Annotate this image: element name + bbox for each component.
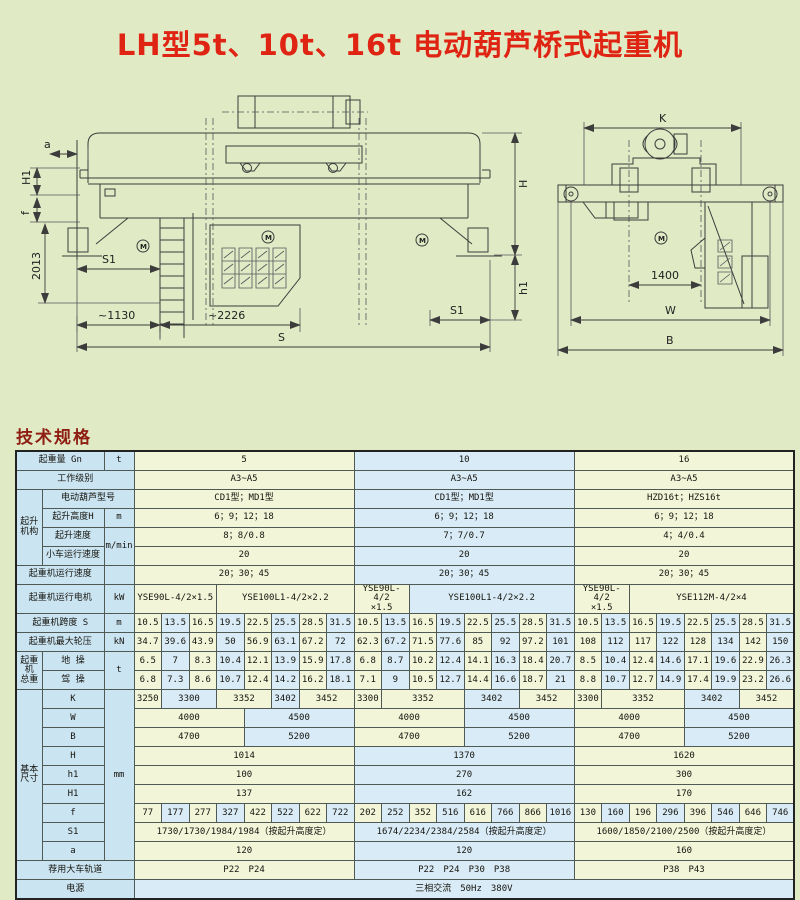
spec-row: 起升高度Hm6；9；12；186；9；12；186；9；12；18 bbox=[16, 509, 794, 528]
spec-table-wrap: 起重量 Gnt51016工作级别A3~A5A3~A5A3~A5起升 机构电动葫芦… bbox=[15, 450, 793, 900]
spec-label-cell: B bbox=[42, 728, 104, 747]
spec-value-cell: 746 bbox=[767, 804, 795, 823]
trolley-frame bbox=[226, 146, 362, 163]
dim-label-B: B bbox=[666, 334, 674, 347]
dim-label-2226: ~2226 bbox=[208, 309, 245, 322]
spec-value-cell: 16.5 bbox=[189, 614, 217, 633]
crane-end-view-drawing: K bbox=[548, 88, 798, 380]
crane-elevation-svg: M M M a H1 f bbox=[10, 88, 550, 383]
dim-label-S1-right: S1 bbox=[450, 304, 464, 317]
spec-value-cell: 19.5 bbox=[437, 614, 465, 633]
spec-value-cell: 4500 bbox=[464, 709, 574, 728]
spec-value-cell: 4700 bbox=[134, 728, 244, 747]
spec-value-cell: 62.3 bbox=[354, 633, 382, 652]
left-crane-wheel bbox=[68, 228, 88, 252]
spec-value-cell: 22.5 bbox=[244, 614, 272, 633]
right-end-brace bbox=[440, 218, 472, 244]
spec-label-cell: kN bbox=[104, 633, 134, 652]
spec-label-cell: 起升速度 bbox=[42, 528, 104, 547]
motor-symbol-2: M bbox=[262, 231, 274, 243]
spec-value-cell: 3452 bbox=[299, 690, 354, 709]
spec-value-cell: A3~A5 bbox=[574, 471, 794, 490]
spec-label-cell: 起重机跨度 S bbox=[16, 614, 104, 633]
spec-value-cell: 160 bbox=[602, 804, 630, 823]
spec-value-cell: 3250 bbox=[134, 690, 162, 709]
spec-value-cell: 5200 bbox=[244, 728, 354, 747]
spec-value-cell: 516 bbox=[437, 804, 465, 823]
spec-value-cell: 12.7 bbox=[437, 671, 465, 690]
spec-value-cell: 20；30；45 bbox=[134, 566, 354, 585]
spec-value-cell: 1014 bbox=[134, 747, 354, 766]
spec-value-cell: 352 bbox=[409, 804, 437, 823]
hoist-side-panel bbox=[742, 256, 768, 308]
spec-value-cell: 14.2 bbox=[272, 671, 300, 690]
cab-windows bbox=[222, 248, 286, 288]
spec-value-cell: 25.5 bbox=[492, 614, 520, 633]
spec-value-cell: 196 bbox=[629, 804, 657, 823]
dim-label-H: H bbox=[517, 180, 530, 188]
dim-label-1400: 1400 bbox=[651, 269, 679, 282]
spec-value-cell: 766 bbox=[492, 804, 520, 823]
spec-row: 起重机运行电机kWYSE90L-4/2×1.5YSE100L1-4/2×2.2Y… bbox=[16, 585, 794, 614]
spec-label-cell: m bbox=[104, 614, 134, 633]
spec-value-cell: 17.4 bbox=[684, 671, 712, 690]
spec-label-cell: 起重机运行速度 bbox=[16, 566, 104, 585]
spec-value-cell: 8.6 bbox=[189, 671, 217, 690]
spec-value-cell: 6；9；12；18 bbox=[354, 509, 574, 528]
spec-value-cell: 19.5 bbox=[657, 614, 685, 633]
spec-value-cell: 19.5 bbox=[217, 614, 245, 633]
spec-value-cell: 117 bbox=[629, 633, 657, 652]
runway-wheel-right-hub bbox=[768, 192, 772, 196]
spec-label-cell: 工作级别 bbox=[16, 471, 134, 490]
motor-symbol-end-view: M bbox=[655, 232, 667, 244]
spec-value-cell: 19.9 bbox=[712, 671, 740, 690]
spec-value-cell: 17.1 bbox=[684, 652, 712, 671]
spec-value-cell: 5200 bbox=[464, 728, 574, 747]
spec-value-cell: 7.3 bbox=[162, 671, 190, 690]
motor-letter: M bbox=[140, 243, 147, 251]
spec-heading: 技术规格 bbox=[16, 423, 92, 448]
spec-value-cell: 3352 bbox=[382, 690, 465, 709]
spec-value-cell: 72 bbox=[327, 633, 355, 652]
spec-value-cell: 4；4/0.4 bbox=[574, 528, 794, 547]
spec-value-cell: 3300 bbox=[162, 690, 217, 709]
left-support-bracket bbox=[583, 202, 638, 218]
right-end-stop bbox=[482, 170, 490, 178]
spec-label-cell bbox=[104, 566, 134, 585]
spec-value-cell: 277 bbox=[189, 804, 217, 823]
spec-label-cell: t bbox=[104, 652, 134, 690]
spec-value-cell: 12.7 bbox=[629, 671, 657, 690]
spec-value-cell: 10.7 bbox=[602, 671, 630, 690]
spec-value-cell: 19.6 bbox=[712, 652, 740, 671]
spec-value-cell: YSE100L1-4/2×2.2 bbox=[409, 585, 574, 614]
spec-value-cell: 3352 bbox=[217, 690, 272, 709]
spec-label-cell: t bbox=[104, 451, 134, 471]
spec-value-cell: 16.2 bbox=[299, 671, 327, 690]
spec-value-cell: 50 bbox=[217, 633, 245, 652]
spec-value-cell: 7 bbox=[162, 652, 190, 671]
spec-value-cell: 722 bbox=[327, 804, 355, 823]
spec-value-cell: 18.4 bbox=[519, 652, 547, 671]
spec-label-cell: m/min bbox=[104, 528, 134, 566]
spec-label-cell: 起重机最大轮压 bbox=[16, 633, 104, 652]
spec-value-cell: 396 bbox=[684, 804, 712, 823]
spec-value-cell: 3402 bbox=[272, 690, 300, 709]
cab-diagonal-brace bbox=[708, 206, 744, 304]
spec-value-cell: 10 bbox=[354, 451, 574, 471]
spec-value-cell: YSE90L-4/2×1.5 bbox=[134, 585, 217, 614]
spec-value-cell: 20.7 bbox=[547, 652, 575, 671]
dim-label-W: W bbox=[665, 304, 676, 317]
motor-letter: M bbox=[419, 237, 426, 245]
spec-value-cell: 12.4 bbox=[244, 671, 272, 690]
spec-value-cell: 300 bbox=[574, 766, 794, 785]
spec-value-cell: 13.5 bbox=[602, 614, 630, 633]
spec-value-cell: 28.5 bbox=[739, 614, 767, 633]
spec-value-cell: 4700 bbox=[574, 728, 684, 747]
spec-value-cell: 12.4 bbox=[437, 652, 465, 671]
spec-value-cell: 4000 bbox=[134, 709, 244, 728]
spec-value-cell: 22.9 bbox=[739, 652, 767, 671]
spec-value-cell: 67.2 bbox=[299, 633, 327, 652]
spec-value-cell: 26.3 bbox=[767, 652, 795, 671]
page-title: LH型5t、10t、16t 电动葫芦桥式起重机 bbox=[0, 22, 800, 64]
spec-value-cell: 13.5 bbox=[382, 614, 410, 633]
spec-value-cell: 170 bbox=[574, 785, 794, 804]
spec-value-cell: 10.5 bbox=[409, 671, 437, 690]
spec-value-cell: 4700 bbox=[354, 728, 464, 747]
spec-value-cell: HZD16t；HZS16t bbox=[574, 490, 794, 509]
dim-label-K: K bbox=[659, 112, 667, 125]
spec-value-cell: 4000 bbox=[354, 709, 464, 728]
trolley-end-frame bbox=[612, 158, 716, 185]
spec-value-cell: 20 bbox=[354, 547, 574, 566]
spec-value-cell: 7；7/0.7 bbox=[354, 528, 574, 547]
dim-label-1130: ~1130 bbox=[98, 309, 135, 322]
spec-value-cell: 85 bbox=[464, 633, 492, 652]
spec-label-cell: h1 bbox=[42, 766, 104, 785]
spec-row: 荐用大车轨道P22 P24P22 P24 P30 P38P38 P43 bbox=[16, 861, 794, 880]
spec-value-cell: 6；9；12；18 bbox=[574, 509, 794, 528]
spec-value-cell: 1730/1730/1984/1984（按起升高度定） bbox=[134, 823, 354, 842]
spec-label-cell: 小车运行速度 bbox=[42, 547, 104, 566]
spec-value-cell: 5 bbox=[134, 451, 354, 471]
spec-value-cell: 327 bbox=[217, 804, 245, 823]
spec-label-cell: 驾 操 bbox=[42, 671, 104, 690]
spec-value-cell: 112 bbox=[602, 633, 630, 652]
spec-value-cell: 18.1 bbox=[327, 671, 355, 690]
dim-label-S: S bbox=[278, 331, 285, 344]
spec-value-cell: P22 P24 P30 P38 bbox=[354, 861, 574, 880]
spec-value-cell: 7.1 bbox=[354, 671, 382, 690]
spec-label-cell: 电源 bbox=[16, 880, 134, 900]
spec-value-cell: 31.5 bbox=[767, 614, 795, 633]
spec-label-cell: 起重机 总重 bbox=[16, 652, 42, 690]
hoist-motor-body bbox=[645, 129, 675, 159]
spec-table: 起重量 Gnt51016工作级别A3~A5A3~A5A3~A5起升 机构电动葫芦… bbox=[15, 450, 795, 900]
spec-value-cell: 43.9 bbox=[189, 633, 217, 652]
hoist-reducer bbox=[674, 134, 687, 154]
spec-value-cell: 56.9 bbox=[244, 633, 272, 652]
spec-value-cell: 97.2 bbox=[519, 633, 547, 652]
trolley-hanger-left bbox=[614, 202, 648, 220]
spec-value-cell: 8.3 bbox=[189, 652, 217, 671]
spec-value-cell: 13.9 bbox=[272, 652, 300, 671]
spec-value-cell: 3352 bbox=[602, 690, 685, 709]
spec-value-cell: 177 bbox=[162, 804, 190, 823]
spec-value-cell: A3~A5 bbox=[134, 471, 354, 490]
spec-value-cell: 100 bbox=[134, 766, 354, 785]
spec-label-cell: 起重量 Gn bbox=[16, 451, 104, 471]
spec-value-cell: 9 bbox=[382, 671, 410, 690]
spec-value-cell: 3452 bbox=[739, 690, 794, 709]
spec-label-cell: W bbox=[42, 709, 104, 728]
spec-value-cell: 63.1 bbox=[272, 633, 300, 652]
spec-value-cell: 25.5 bbox=[712, 614, 740, 633]
spec-value-cell: 31.5 bbox=[327, 614, 355, 633]
spec-value-cell: CD1型；MD1型 bbox=[354, 490, 574, 509]
spec-value-cell: 10.4 bbox=[602, 652, 630, 671]
spec-value-cell: 92 bbox=[492, 633, 520, 652]
spec-value-cell: 622 bbox=[299, 804, 327, 823]
crane-end-view-svg: K bbox=[548, 88, 798, 380]
spec-value-cell: 14.1 bbox=[464, 652, 492, 671]
spec-value-cell: 13.5 bbox=[162, 614, 190, 633]
spec-value-cell: 14.4 bbox=[464, 671, 492, 690]
spec-value-cell: 3452 bbox=[519, 690, 574, 709]
cab-left-flange bbox=[691, 238, 705, 268]
spec-label-cell: H1 bbox=[42, 785, 104, 804]
page: LH型5t、10t、16t 电动葫芦桥式起重机 bbox=[0, 0, 800, 900]
dim-label-f: f bbox=[19, 210, 32, 215]
motor-symbol-1: M bbox=[137, 240, 149, 252]
spec-value-cell: 4000 bbox=[574, 709, 684, 728]
spec-value-cell: 120 bbox=[134, 842, 354, 861]
bridge-girder-top bbox=[88, 133, 480, 183]
spec-value-cell: 17.8 bbox=[327, 652, 355, 671]
spec-label-cell: 电动葫芦型号 bbox=[42, 490, 134, 509]
spec-value-cell: 422 bbox=[244, 804, 272, 823]
spec-value-cell: 108 bbox=[574, 633, 602, 652]
left-end-stop bbox=[80, 170, 88, 178]
spec-value-cell: 128 bbox=[684, 633, 712, 652]
spec-value-cell: 39.6 bbox=[162, 633, 190, 652]
spec-value-cell: 616 bbox=[464, 804, 492, 823]
spec-row: 起升速度m/min8；8/0.87；7/0.74；4/0.4 bbox=[16, 528, 794, 547]
spec-label-cell: 基本 尺寸 bbox=[16, 690, 42, 861]
spec-value-cell: YSE90L-4/2 ×1.5 bbox=[574, 585, 629, 614]
hoist-motor-shaft bbox=[655, 139, 665, 149]
spec-value-cell: 270 bbox=[354, 766, 574, 785]
spec-label-cell: mm bbox=[104, 690, 134, 861]
cab-outline bbox=[210, 225, 300, 306]
spec-value-cell: 10.4 bbox=[217, 652, 245, 671]
spec-label-cell: kW bbox=[104, 585, 134, 614]
spec-value-cell: 31.5 bbox=[547, 614, 575, 633]
spec-value-cell: 646 bbox=[739, 804, 767, 823]
spec-value-cell: 3300 bbox=[354, 690, 382, 709]
spec-value-cell: 25.5 bbox=[272, 614, 300, 633]
spec-label-cell: H bbox=[42, 747, 104, 766]
spec-value-cell: 10.7 bbox=[217, 671, 245, 690]
spec-value-cell: 3402 bbox=[684, 690, 739, 709]
spec-value-cell: 16.6 bbox=[492, 671, 520, 690]
spec-value-cell: 12.1 bbox=[244, 652, 272, 671]
cab-hatch-marks bbox=[718, 240, 732, 284]
spec-value-cell: 101 bbox=[547, 633, 575, 652]
spec-value-cell: 122 bbox=[657, 633, 685, 652]
spec-value-cell: 162 bbox=[354, 785, 574, 804]
motor-letter: M bbox=[265, 234, 272, 242]
spec-row: 电源三相交流 50Hz 380V bbox=[16, 880, 794, 900]
spec-value-cell: 10.5 bbox=[134, 614, 162, 633]
spec-value-cell: 130 bbox=[574, 804, 602, 823]
spec-value-cell: 5200 bbox=[684, 728, 794, 747]
spec-value-cell: 34.7 bbox=[134, 633, 162, 652]
spec-value-cell: 71.5 bbox=[409, 633, 437, 652]
spec-value-cell: A3~A5 bbox=[354, 471, 574, 490]
spec-value-cell: 67.2 bbox=[382, 633, 410, 652]
spec-value-cell: 1600/1850/2100/2500（按起升高度定） bbox=[574, 823, 794, 842]
dim-label-H1: H1 bbox=[20, 170, 33, 185]
spec-label-cell: 荐用大车轨道 bbox=[16, 861, 134, 880]
spec-value-cell: 18.7 bbox=[519, 671, 547, 690]
right-crane-wheel bbox=[468, 228, 488, 252]
spec-value-cell: 1370 bbox=[354, 747, 574, 766]
spec-label-cell: a bbox=[42, 842, 104, 861]
spec-value-cell: 4500 bbox=[244, 709, 354, 728]
spec-value-cell: 252 bbox=[382, 804, 410, 823]
spec-value-cell: CD1型；MD1型 bbox=[134, 490, 354, 509]
spec-value-cell: 22.5 bbox=[464, 614, 492, 633]
spec-value-cell: 14.6 bbox=[657, 652, 685, 671]
spec-tbody: 起重量 Gnt51016工作级别A3~A5A3~A5A3~A5起升 机构电动葫芦… bbox=[16, 451, 794, 899]
spec-value-cell: 77 bbox=[134, 804, 162, 823]
spec-label-cell: 起重机运行电机 bbox=[16, 585, 104, 614]
spec-row: 基本 尺寸Kmm32503300335234023452330033523402… bbox=[16, 690, 794, 709]
spec-value-cell: 150 bbox=[767, 633, 795, 652]
spec-value-cell: 22.5 bbox=[684, 614, 712, 633]
spec-row: 起重机跨度 Sm10.513.516.519.522.525.528.531.5… bbox=[16, 614, 794, 633]
spec-label-cell: K bbox=[42, 690, 104, 709]
dim-label-a: a bbox=[44, 138, 51, 151]
spec-label-cell: S1 bbox=[42, 823, 104, 842]
spec-value-cell: 3300 bbox=[574, 690, 602, 709]
spec-label-cell: 起升 机构 bbox=[16, 490, 42, 566]
spec-row: 起升 机构电动葫芦型号CD1型；MD1型CD1型；MD1型HZD16t；HZS1… bbox=[16, 490, 794, 509]
spec-value-cell: 522 bbox=[272, 804, 300, 823]
spec-value-cell: 16.5 bbox=[409, 614, 437, 633]
spec-value-cell: 6.8 bbox=[354, 652, 382, 671]
spec-value-cell: 20 bbox=[134, 547, 354, 566]
dim-label-h1: h1 bbox=[517, 281, 530, 295]
spec-value-cell: YSE112M-4/2×4 bbox=[629, 585, 794, 614]
spec-value-cell: 26.6 bbox=[767, 671, 795, 690]
spec-label-cell: 起升高度H bbox=[42, 509, 104, 528]
spec-value-cell: 866 bbox=[519, 804, 547, 823]
spec-value-cell: 14.9 bbox=[657, 671, 685, 690]
spec-value-cell: 8；8/0.8 bbox=[134, 528, 354, 547]
spec-value-cell: 10.2 bbox=[409, 652, 437, 671]
spec-value-cell: 10.5 bbox=[574, 614, 602, 633]
spec-value-cell: 134 bbox=[712, 633, 740, 652]
spec-value-cell: 10.5 bbox=[354, 614, 382, 633]
spec-value-cell: 三相交流 50Hz 380V bbox=[134, 880, 794, 900]
dim-label-S1-left: S1 bbox=[102, 253, 116, 266]
spec-value-cell: 202 bbox=[354, 804, 382, 823]
spec-value-cell: 23.2 bbox=[739, 671, 767, 690]
spec-value-cell: 3402 bbox=[464, 690, 519, 709]
dim-label-2013: 2013 bbox=[30, 252, 43, 280]
spec-row: 工作级别A3~A5A3~A5A3~A5 bbox=[16, 471, 794, 490]
motor-fan-cover bbox=[643, 136, 677, 152]
left-end-brace bbox=[96, 218, 128, 244]
spec-value-cell: 20；30；45 bbox=[354, 566, 574, 585]
spec-value-cell: P22 P24 bbox=[134, 861, 354, 880]
spec-row: 起重机最大轮压kN34.739.643.95056.963.167.27262.… bbox=[16, 633, 794, 652]
spec-row: 起重量 Gnt51016 bbox=[16, 451, 794, 471]
runway-wheel-left-hub bbox=[569, 192, 573, 196]
spec-value-cell: 160 bbox=[574, 842, 794, 861]
spec-value-cell: 142 bbox=[739, 633, 767, 652]
spec-label-cell: m bbox=[104, 509, 134, 528]
spec-value-cell: 15.9 bbox=[299, 652, 327, 671]
spec-value-cell: 4500 bbox=[684, 709, 794, 728]
spec-value-cell: 137 bbox=[134, 785, 354, 804]
spec-value-cell: 6.8 bbox=[134, 671, 162, 690]
spec-value-cell: 21 bbox=[547, 671, 575, 690]
spec-value-cell: 16 bbox=[574, 451, 794, 471]
spec-value-cell: 8.7 bbox=[382, 652, 410, 671]
spec-value-cell: 1674/2234/2384/2584（按起升高度定） bbox=[354, 823, 574, 842]
spec-value-cell: 1016 bbox=[547, 804, 575, 823]
spec-value-cell: YSE100L1-4/2×2.2 bbox=[217, 585, 355, 614]
ladder-rungs bbox=[160, 228, 184, 324]
spec-value-cell: 8.8 bbox=[574, 671, 602, 690]
spec-value-cell: 20 bbox=[574, 547, 794, 566]
spec-row: 起重机 总重地 操t6.578.310.412.113.915.917.86.8… bbox=[16, 652, 794, 671]
spec-value-cell: 8.5 bbox=[574, 652, 602, 671]
spec-value-cell: 120 bbox=[354, 842, 574, 861]
spec-value-cell: 546 bbox=[712, 804, 740, 823]
motor-letter: M bbox=[658, 235, 665, 243]
spec-value-cell: 28.5 bbox=[519, 614, 547, 633]
crane-elevation-drawing: M M M a H1 f bbox=[10, 88, 550, 383]
spec-label-cell: 地 操 bbox=[42, 652, 104, 671]
spec-value-cell: YSE90L-4/2 ×1.5 bbox=[354, 585, 409, 614]
spec-value-cell: 12.4 bbox=[629, 652, 657, 671]
girder-hatch bbox=[105, 189, 115, 196]
spec-row: 起重机运行速度20；30；4520；30；4520；30；45 bbox=[16, 566, 794, 585]
spec-value-cell: P38 P43 bbox=[574, 861, 794, 880]
spec-value-cell: 28.5 bbox=[299, 614, 327, 633]
spec-value-cell: 6.5 bbox=[134, 652, 162, 671]
end-girder-beam bbox=[558, 185, 783, 202]
spec-value-cell: 296 bbox=[657, 804, 685, 823]
spec-value-cell: 1620 bbox=[574, 747, 794, 766]
spec-value-cell: 6；9；12；18 bbox=[134, 509, 354, 528]
spec-value-cell: 20；30；45 bbox=[574, 566, 794, 585]
spec-value-cell: 16.3 bbox=[492, 652, 520, 671]
spec-label-cell: f bbox=[42, 804, 104, 823]
motor-symbol-3: M bbox=[416, 234, 428, 246]
spec-value-cell: 77.6 bbox=[437, 633, 465, 652]
spec-value-cell: 16.5 bbox=[629, 614, 657, 633]
